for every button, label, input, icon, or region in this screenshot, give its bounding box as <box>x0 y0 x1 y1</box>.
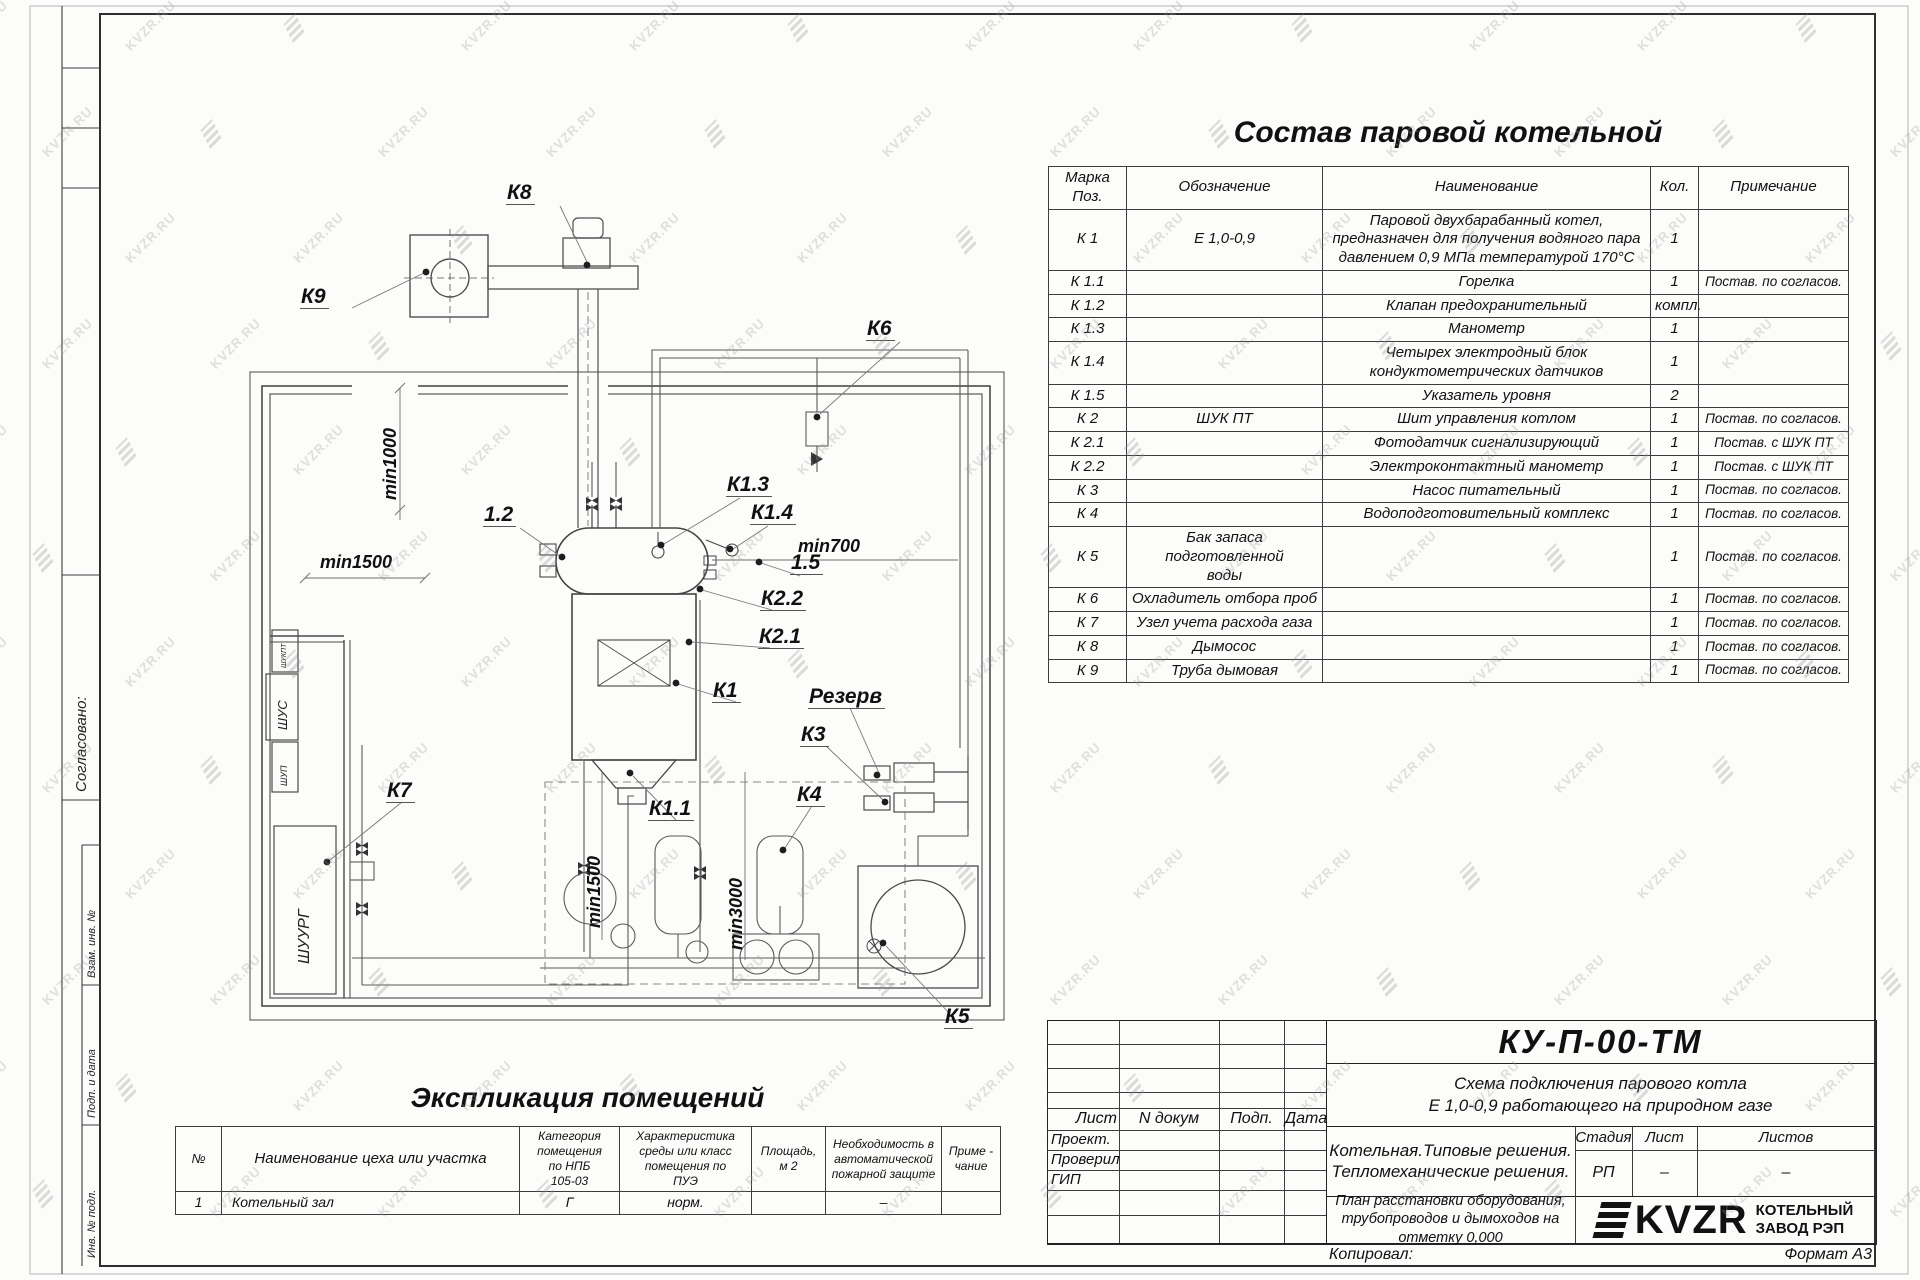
table-row: К 2.1Фотодатчик сигнализирующий1Постав. … <box>1049 432 1849 456</box>
col-header-note: Примечание <box>1699 167 1849 210</box>
col-header-env: Характеристика среды или класс помещения… <box>620 1127 752 1192</box>
sheet-title: План расстановки оборудования, трубопров… <box>1326 1196 1575 1243</box>
format-label: Формат А3 <box>1687 1243 1872 1266</box>
col-header-qty: Кол. <box>1651 167 1699 210</box>
table-row: К 6Охладитель отбора проб1Постав. по сог… <box>1049 588 1849 612</box>
components-table-title: Состав паровой котельной <box>1048 116 1848 150</box>
inv-podl-label: Инв. № подл. <box>86 1190 98 1258</box>
sheets-header: Листов <box>1697 1126 1875 1150</box>
label-k2-2: К2.2 <box>760 588 806 611</box>
copied-label: Копировал: <box>1329 1243 1449 1266</box>
room-walls <box>250 372 1004 1020</box>
label-k7: К7 <box>386 780 415 803</box>
kvzr-logo-text: KVZR <box>1635 1195 1748 1245</box>
table-row: К 2.2Электроконтактный манометр1Постав. … <box>1049 455 1849 479</box>
label-k1-4: К1.4 <box>750 502 796 525</box>
explication-table-title: Экспликация помещений <box>175 1082 1000 1114</box>
label-k4: К4 <box>796 784 825 807</box>
label-k1-3: К1.3 <box>726 474 772 497</box>
table-row: К 1.3Манометр1 <box>1049 318 1849 342</box>
label-rezerv: Резерв <box>808 686 885 709</box>
role-project: Проект. <box>1051 1130 1119 1150</box>
col-header-category: Категория помещения по НПБ 105-03 <box>520 1127 620 1192</box>
cabinet-shukpt: ШУКПТ <box>281 644 288 668</box>
table-row: К 3Насос питательный1Постав. по согласов… <box>1049 479 1849 503</box>
table-row: К 1.1Горелка1Постав. по согласов. <box>1049 270 1849 294</box>
sogl-label: Согласовано: <box>73 696 90 792</box>
col-header-note: Приме - чание <box>942 1127 1001 1192</box>
dim-min700: min700 <box>798 536 860 557</box>
col-header-fire: Необходимость в автоматической пожарной … <box>826 1127 942 1192</box>
table-row: К 1.4Четырех электродный блок кондуктоме… <box>1049 342 1849 385</box>
table-row: К 8Дымосос1Постав. по согласов. <box>1049 635 1849 659</box>
dim-min3000: min3000 <box>726 878 747 950</box>
table-row: К 1.2Клапан предохранительныйкомпл. <box>1049 294 1849 318</box>
col-header-num: № <box>176 1127 222 1192</box>
role-gip: ГИП <box>1051 1170 1119 1190</box>
table-row: К 5Бак запаса подготовленной воды1Постав… <box>1049 527 1849 588</box>
vzam-label: Взам. инв. № <box>86 910 98 978</box>
dim-min1500-left: min1500 <box>320 552 392 573</box>
table-row: 1 Котельный зал Г норм. – <box>176 1192 1001 1215</box>
label-k1-1: К1.1 <box>648 798 694 821</box>
col-header-designation: Обозначение <box>1127 167 1323 210</box>
feed-pumps-group <box>864 756 968 830</box>
cabinet-shup: ШУП <box>279 765 289 786</box>
doc-title: Схема подключения парового котла Е 1,0-0… <box>1326 1063 1875 1126</box>
col-ndoc-label: N докум <box>1121 1108 1217 1130</box>
label-k6: К6 <box>866 318 895 341</box>
dim-min1500-burner: min1500 <box>584 856 605 928</box>
table-row: К 2ШУК ПТШит управления котлом1Постав. п… <box>1049 408 1849 432</box>
label-k5: К5 <box>944 1006 973 1029</box>
leader-lines <box>330 206 950 1014</box>
stage-value: РП <box>1575 1150 1632 1196</box>
boiler-group <box>540 462 738 804</box>
stage-header: Стадия <box>1575 1126 1632 1150</box>
drawing-sheet: Согласовано: Взам. инв. № Подп. и дата И… <box>0 0 1920 1280</box>
label-k2-1: К2.1 <box>758 626 804 649</box>
table-row: К 1Е 1,0-0,9Паровой двухбарабанный котел… <box>1049 209 1849 270</box>
podp-data-label: Подп. и дата <box>86 1049 98 1118</box>
company-name: КОТЕЛЬНЫЙ ЗАВОД РЭП <box>1756 1202 1854 1237</box>
cabinet-shuurg: ШУУРГ <box>296 909 314 964</box>
col-list-label: Лист <box>1053 1108 1117 1130</box>
components-header-row: Марка Поз. Обозначение Наименование Кол.… <box>1049 167 1849 210</box>
dim-min1000: min1000 <box>380 428 401 500</box>
table-row: К 1.5Указатель уровня2 <box>1049 384 1849 408</box>
col-header-name: Наименование <box>1323 167 1651 210</box>
role-checked: Проверил <box>1051 1150 1119 1170</box>
table-row: К 7Узел учета расхода газа1Постав. по со… <box>1049 612 1849 636</box>
sheet-value: – <box>1632 1150 1697 1196</box>
cabinet-shus: ШУС <box>275 700 290 730</box>
table-row: К 4Водоподготовительный комплекс1Постав.… <box>1049 503 1849 527</box>
chimney-group <box>404 229 638 323</box>
col-header-mark: Марка Поз. <box>1049 167 1127 210</box>
company-logo-cell: KVZR КОТЕЛЬНЫЙ ЗАВОД РЭП <box>1575 1196 1875 1243</box>
label-k8: К8 <box>506 182 535 205</box>
tank-group <box>858 830 978 988</box>
col-header-area: Площадь, м 2 <box>752 1127 826 1192</box>
label-1-2: 1.2 <box>483 504 516 527</box>
sheets-value: – <box>1697 1150 1875 1196</box>
sheet-header: Лист <box>1632 1126 1697 1150</box>
components-table: Марка Поз. Обозначение Наименование Кол.… <box>1048 166 1849 683</box>
table-row: К 9Труба дымовая1Постав. по согласов. <box>1049 659 1849 683</box>
explication-header-row: № Наименование цеха или участка Категори… <box>176 1127 1001 1192</box>
title-block: Лист N докум Подп. Дата Проект. Проверил… <box>1047 1020 1875 1266</box>
label-k3: К3 <box>800 724 829 747</box>
explication-table: № Наименование цеха или участка Категори… <box>175 1126 1001 1215</box>
doc-code: КУ-П-00-ТМ <box>1326 1020 1875 1063</box>
col-date-label: Дата <box>1286 1108 1326 1130</box>
object-name: Котельная.Типовые решения. Тепломеханиче… <box>1326 1126 1575 1196</box>
label-k9: К9 <box>300 286 329 309</box>
label-k1: К1 <box>712 680 741 703</box>
kvzr-logo-icon <box>1592 1202 1631 1238</box>
col-sign-label: Подп. <box>1221 1108 1282 1130</box>
col-header-room-name: Наименование цеха или участка <box>222 1127 520 1192</box>
